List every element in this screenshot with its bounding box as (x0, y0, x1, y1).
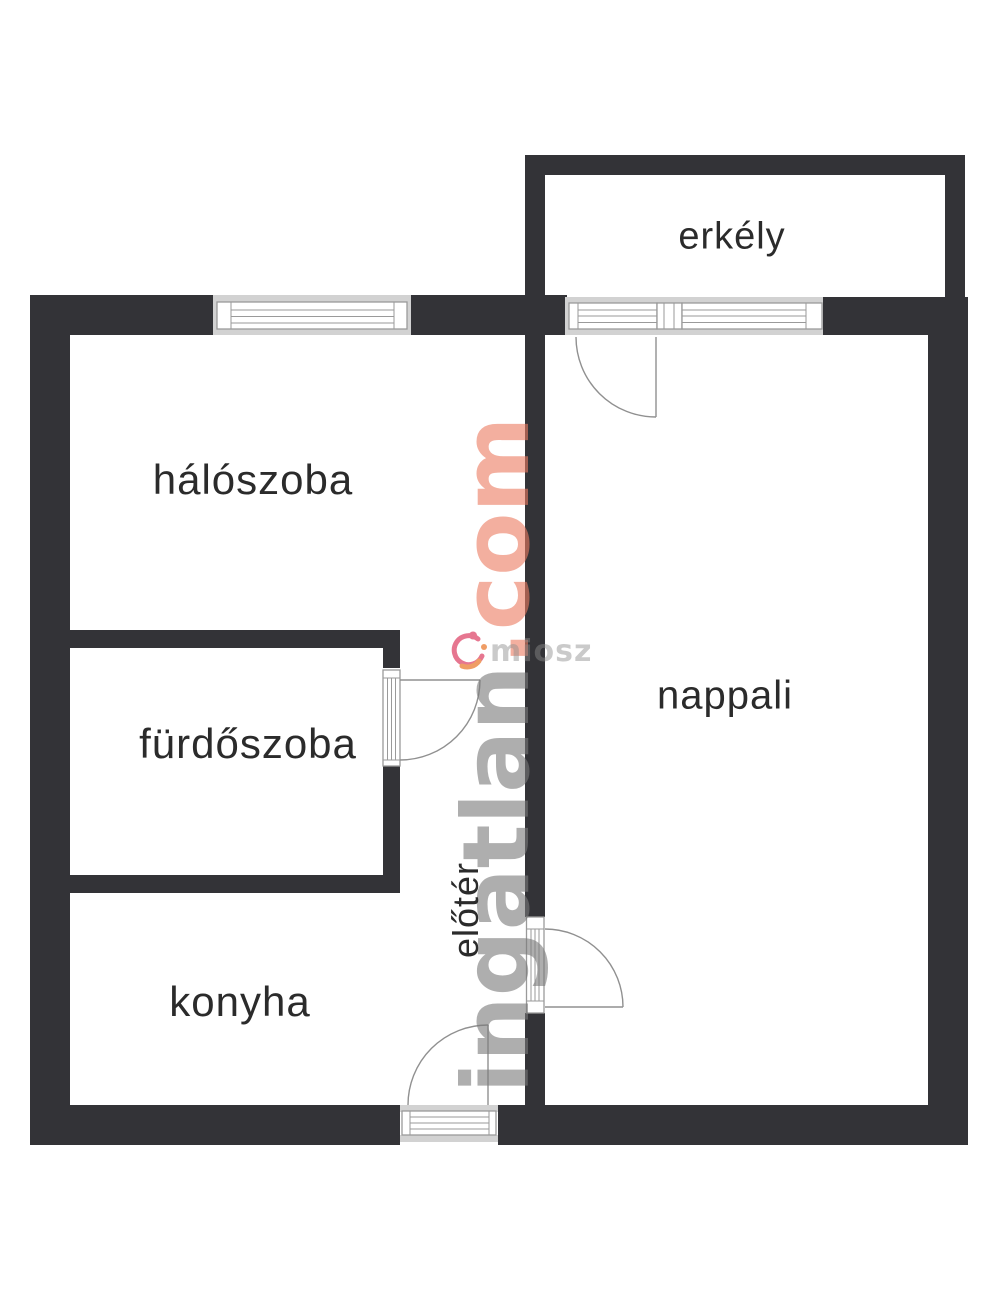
door-bathroom (383, 670, 480, 766)
window-bedroom (213, 295, 411, 335)
wall-livingroom-left-upper (525, 335, 545, 917)
wall-balcony-right (945, 155, 965, 303)
room-label-haloszoba: hálószoba (153, 456, 353, 504)
watermark-partner-label: miosz (490, 634, 592, 669)
door-livingroom (527, 917, 624, 1013)
balcony-door-swing (576, 337, 656, 417)
room-label-erkely: erkély (678, 216, 785, 259)
wall-bottom-left-segment (30, 1105, 400, 1145)
watermark-logo-icon (448, 630, 492, 674)
wall-top-left-segment (30, 295, 215, 335)
room-label-eloter: előtér (445, 862, 487, 958)
floor-plan: ingatlan.com miosz erkély hálószoba fürd… (0, 0, 1000, 1304)
room-label-konyha: konyha (169, 978, 310, 1026)
wall-left-exterior (30, 295, 70, 1145)
door-entrance (400, 1025, 498, 1142)
wall-livingroom-left-lower (525, 1013, 545, 1105)
wall-bathroom-right-upper (383, 630, 400, 668)
room-label-furdoszoba: fürdőszoba (139, 720, 357, 768)
wall-balcony-left (525, 155, 545, 303)
wall-bottom-right-segment (498, 1105, 968, 1145)
wall-bathroom-right-lower (383, 766, 400, 893)
wall-bathroom-top (70, 630, 400, 648)
wall-right-exterior (928, 297, 968, 1145)
balcony-door-and-window (565, 297, 823, 417)
window-mullion (657, 303, 682, 329)
wall-balcony-top (525, 155, 965, 175)
wall-bathroom-bottom (70, 875, 400, 893)
room-label-nappali: nappali (657, 674, 793, 719)
